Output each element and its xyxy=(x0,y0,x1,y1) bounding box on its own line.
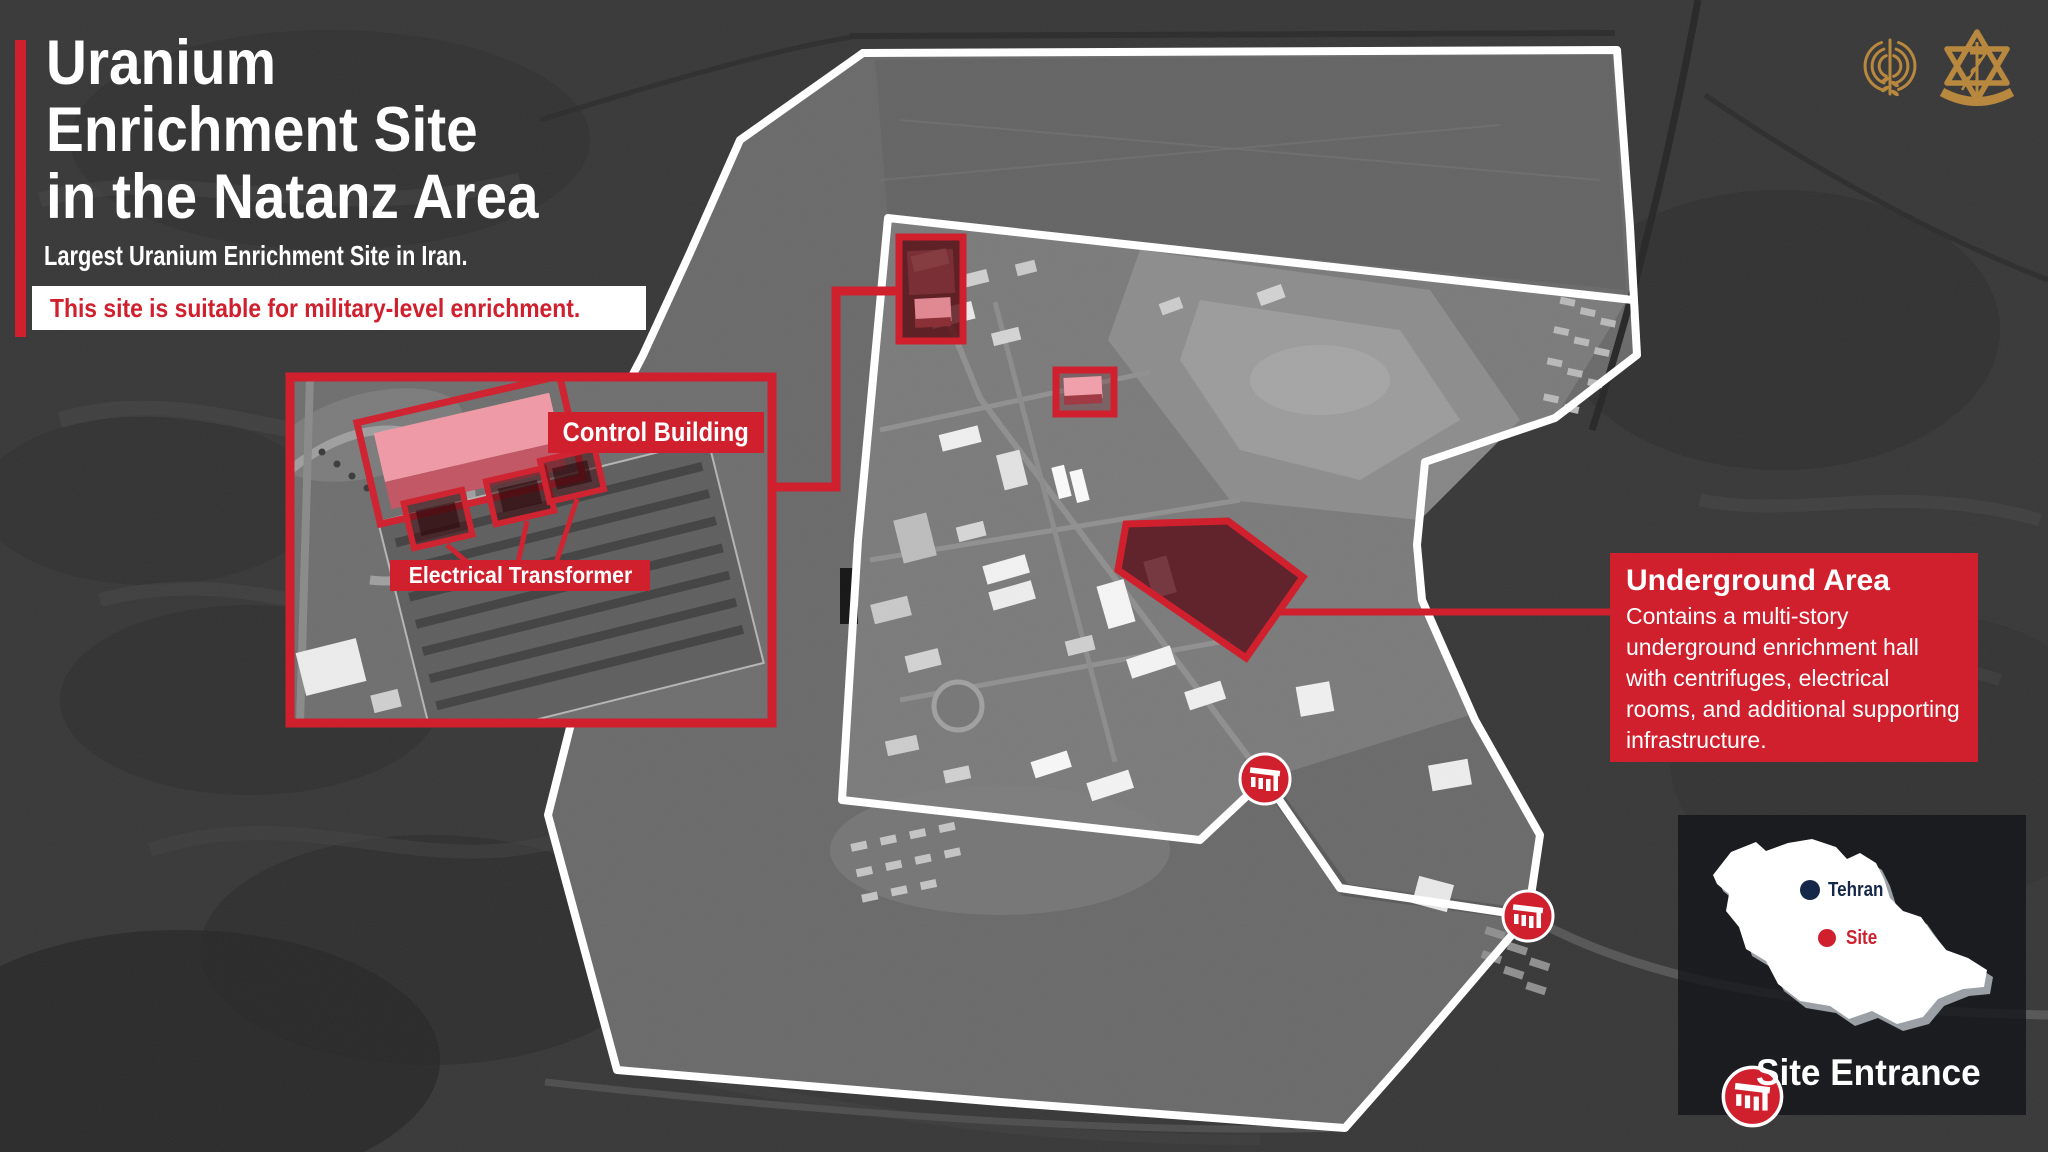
control-building-label: Control Building xyxy=(548,412,764,453)
title-line-2: Enrichment Site xyxy=(46,97,478,164)
tehran-dot xyxy=(1800,880,1820,900)
callout-body: Contains a multi-story underground enric… xyxy=(1626,601,1962,756)
banner-text: This site is suitable for military-level… xyxy=(50,293,580,324)
electrical-transformer-label: Electrical Transformer xyxy=(390,560,650,591)
site-entrance-legend-label: Site Entrance xyxy=(1756,1052,1992,1094)
site-entrance-icon xyxy=(1503,891,1553,941)
building-highlight-box-1 xyxy=(899,237,963,341)
title-accent-bar xyxy=(15,40,26,337)
title-line-3: in the Natanz Area xyxy=(46,164,539,231)
site-dot xyxy=(1818,929,1836,947)
title-line-1: Uranium xyxy=(46,30,276,97)
military-enrichment-banner: This site is suitable for military-level… xyxy=(32,286,646,330)
site-label: Site xyxy=(1846,927,1883,950)
page-title: Uranium Enrichment Site in the Natanz Ar… xyxy=(46,30,593,231)
underground-area-callout: Underground Area Contains a multi-story … xyxy=(1610,553,1978,762)
infographic-canvas: Uranium Enrichment Site in the Natanz Ar… xyxy=(0,0,2048,1152)
tehran-label: Tehran xyxy=(1828,879,1893,902)
callout-title: Underground Area xyxy=(1626,563,1962,599)
page-subtitle: Largest Uranium Enrichment Site in Iran. xyxy=(44,240,587,272)
building-highlight-box-2 xyxy=(1056,370,1114,414)
site-entrance-icon xyxy=(1240,754,1290,804)
